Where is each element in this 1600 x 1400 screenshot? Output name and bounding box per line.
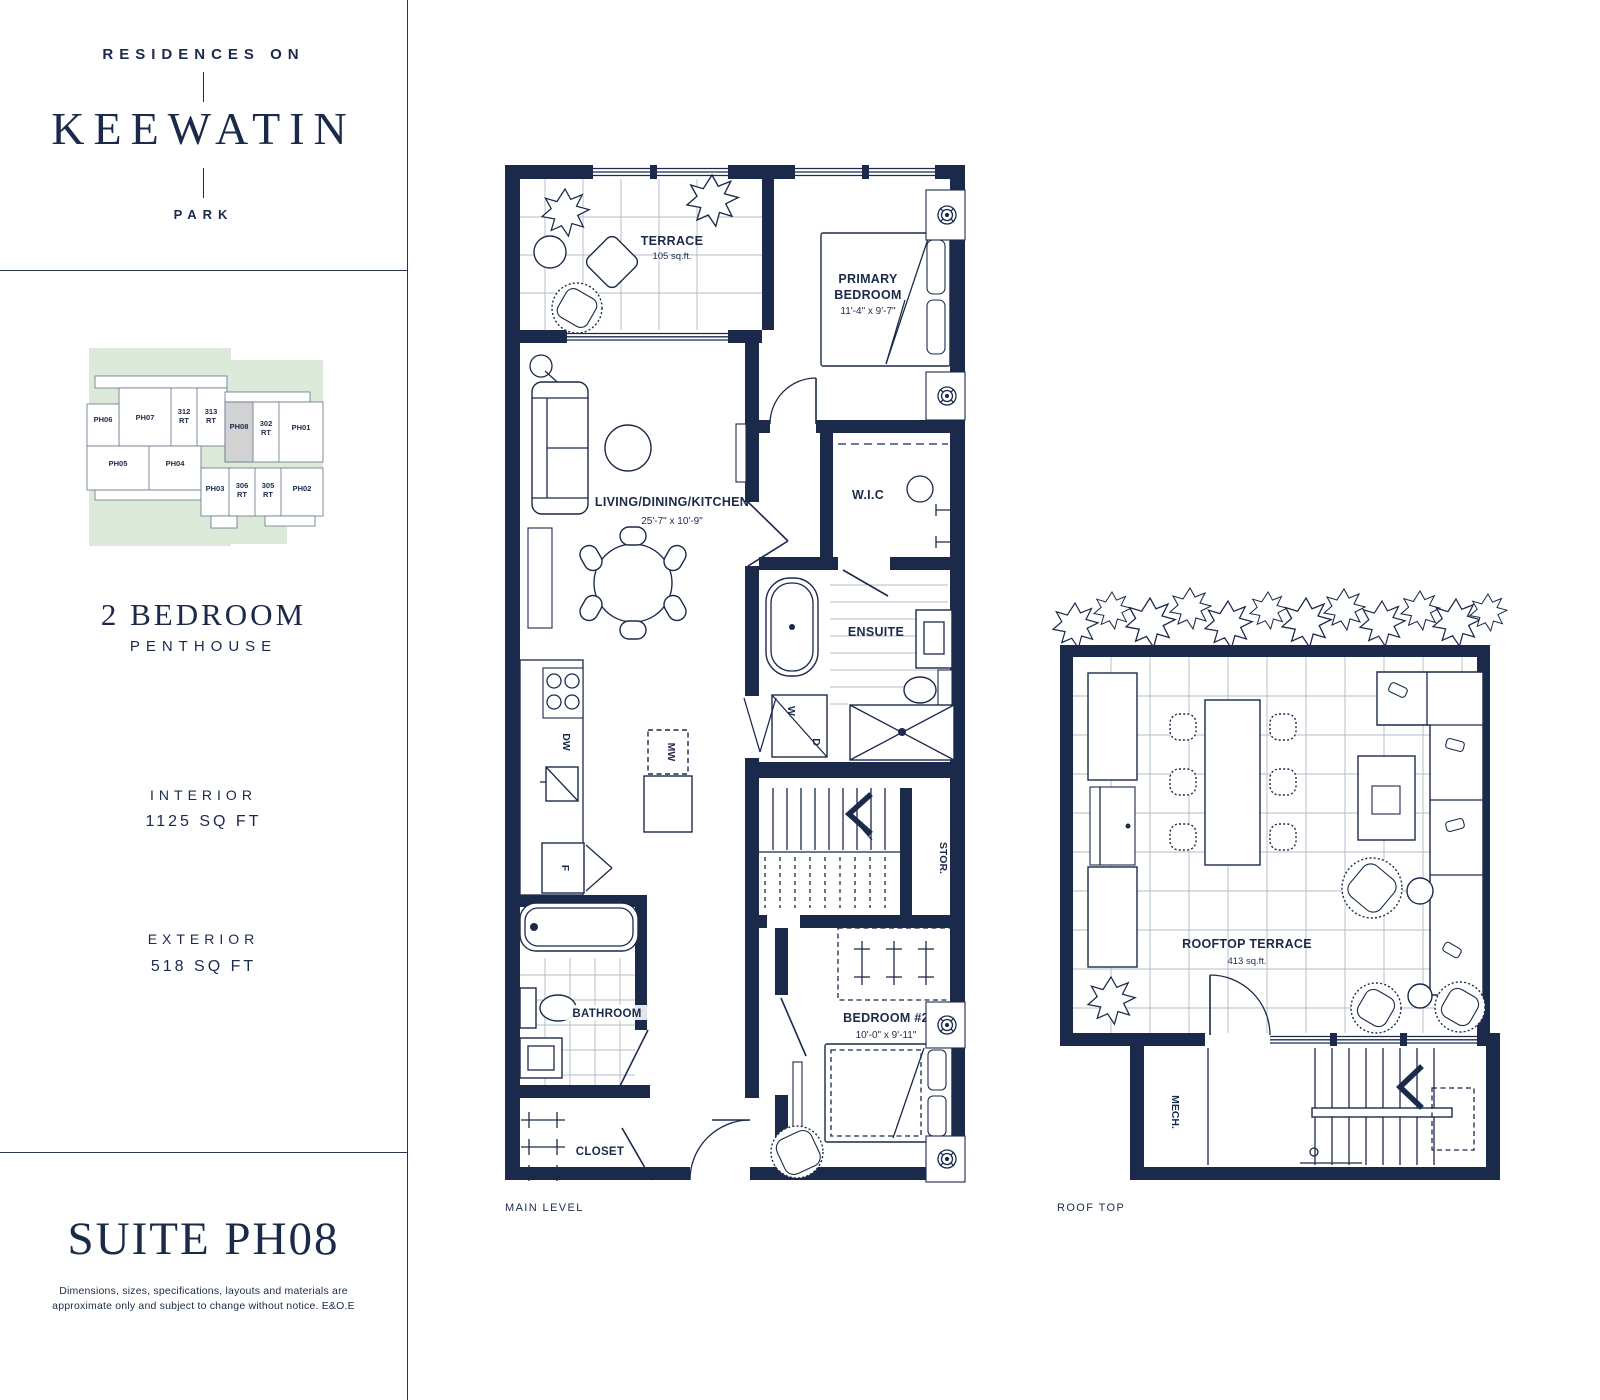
- logo-divider: [0, 270, 407, 271]
- primary-label-1: PRIMARY: [838, 272, 898, 286]
- console: [528, 528, 552, 628]
- terrace-area: 105 sq.ft.: [652, 251, 691, 262]
- ensuite-door: [843, 570, 888, 596]
- svg-text:PH04: PH04: [166, 459, 186, 468]
- brand-line-bottom: PARK: [0, 207, 407, 222]
- roof-top-caption: ROOF TOP: [1057, 1202, 1125, 1214]
- microwave-label: MW: [665, 743, 677, 762]
- floorplan-page: RESIDENCES ON KEEWATIN PARK: [0, 0, 1600, 1400]
- main-level-caption: MAIN LEVEL: [505, 1202, 584, 1214]
- ensuite-toilet: [904, 677, 936, 703]
- fridge-label: F: [559, 865, 571, 872]
- svg-text:RT: RT: [261, 428, 271, 437]
- disclaimer-line2: approximate only and subject to change w…: [0, 1299, 407, 1314]
- svg-text:RT: RT: [263, 490, 273, 499]
- svg-text:PH03: PH03: [206, 484, 225, 493]
- roof-dining: [1170, 700, 1296, 865]
- svg-text:PH06: PH06: [94, 415, 113, 424]
- svg-text:PH07: PH07: [136, 413, 155, 422]
- roof-door: [1210, 975, 1270, 1035]
- hedge: [1053, 588, 1507, 648]
- plant-icon: [687, 175, 738, 226]
- svg-text:PH05: PH05: [109, 459, 128, 468]
- svg-text:313: 313: [205, 407, 218, 416]
- primary-bedroom: PRIMARY BEDROOM 11'-4" x 9'-7": [770, 233, 950, 424]
- svg-text:312: 312: [178, 407, 191, 416]
- svg-text:PH01: PH01: [292, 423, 311, 432]
- stairs-arrow: [849, 796, 869, 832]
- floorplans: TERRACE 105 sq.ft. PRIMARY BEDROOM 11'-4…: [430, 0, 1600, 1400]
- living-dims: 25'-7" x 10'-9": [641, 516, 703, 527]
- stairs: STOR.: [759, 788, 949, 908]
- roof-planters: [1088, 673, 1137, 967]
- roof-chair: [1351, 983, 1401, 1033]
- keyplan-highlight-ph08: [225, 402, 253, 462]
- svg-text:PH08: PH08: [230, 422, 249, 431]
- suite-type-sub: PENTHOUSE: [0, 638, 407, 655]
- roof-side-table: [1407, 878, 1433, 904]
- terrace-table: [584, 234, 641, 291]
- svg-text:306: 306: [236, 481, 249, 490]
- bathroom-door: [620, 1030, 648, 1086]
- ensuite-label: ENSUITE: [848, 625, 904, 639]
- laundry-closet: W D: [744, 695, 827, 757]
- bedroom2-door: [781, 998, 806, 1056]
- mech-label: MECH.: [1169, 1095, 1181, 1129]
- entry-door-arc: [690, 1120, 750, 1180]
- svg-text:RT: RT: [237, 490, 247, 499]
- round-table: [605, 425, 651, 471]
- roof-bottom-seating: [1088, 977, 1485, 1033]
- exterior-value: 518 SQ FT: [0, 958, 407, 976]
- terrace: TERRACE 105 sq.ft.: [520, 175, 762, 333]
- plant-icon: [542, 189, 589, 236]
- bedroom2-dims: 10'-0" x 9'-11": [856, 1030, 917, 1041]
- suite-title: SUITE PH08: [0, 1212, 407, 1266]
- bathroom-label: BATHROOM: [572, 1008, 641, 1020]
- ensuite-vanity: [916, 610, 952, 668]
- disclaimer-line1: Dimensions, sizes, specifications, layou…: [0, 1284, 407, 1299]
- suite-type: 2 BEDROOM: [0, 597, 407, 633]
- interior-label: INTERIOR: [0, 787, 407, 803]
- brand-line-top: RESIDENCES ON: [0, 46, 407, 63]
- bedroom2-label: BEDROOM #2: [843, 1011, 929, 1025]
- svg-text:305: 305: [262, 481, 275, 490]
- exterior-label: EXTERIOR: [0, 931, 407, 947]
- stair-rail: [1312, 1108, 1452, 1117]
- dryer-label: D: [810, 738, 822, 746]
- hall-door: [748, 502, 788, 541]
- roof-dining-table: [1205, 700, 1260, 865]
- terrace-label: TERRACE: [641, 234, 704, 248]
- dishwasher-label: DW: [560, 733, 572, 751]
- roof-chair: [1435, 982, 1485, 1032]
- main-level-plan: TERRACE 105 sq.ft. PRIMARY BEDROOM 11'-4…: [505, 165, 965, 1214]
- svg-text:RT: RT: [206, 416, 216, 425]
- interior-value: 1125 SQ FT: [0, 813, 407, 831]
- washer-label: W: [785, 706, 797, 716]
- closet-label: CLOSET: [576, 1146, 624, 1158]
- living-label: LIVING/DINING/KITCHEN: [595, 495, 749, 509]
- disclaimer: Dimensions, sizes, specifications, layou…: [0, 1284, 407, 1314]
- bathroom-toilet: [520, 988, 536, 1028]
- wic: W.I.C: [838, 444, 960, 548]
- brand-tick-bottom: [203, 168, 204, 198]
- primary-dims: 11'-4" x 9'-7": [840, 306, 896, 317]
- suite-divider: [0, 1152, 407, 1153]
- bedroom2-closet: [838, 928, 954, 1000]
- svg-text:302: 302: [260, 419, 273, 428]
- island: [644, 776, 692, 832]
- primary-label-2: BEDROOM: [834, 288, 901, 302]
- plant-icon: [1088, 977, 1135, 1024]
- brand-name: KEEWATIN: [0, 102, 407, 155]
- roof-windows: [1270, 1037, 1477, 1044]
- roof-top-plan: ROOFTOP TERRACE 413 sq.ft. MECH. ROOF TO…: [1053, 588, 1507, 1214]
- mech-room: MECH.: [1169, 1048, 1474, 1165]
- roof-small-table: [1408, 984, 1432, 1008]
- terrace-side-table: [534, 236, 566, 268]
- brand-tick-top: [203, 72, 204, 102]
- sidebar-divider: [407, 0, 408, 1400]
- dining-table: [594, 544, 672, 622]
- svg-text:RT: RT: [179, 416, 189, 425]
- bathroom-vanity: [520, 1038, 562, 1078]
- rooftop-area: 413 sq.ft.: [1227, 956, 1266, 967]
- wic-label: W.I.C: [852, 488, 884, 502]
- keyplan: PH06 PH07 312 RT 313 RT PH08 302 RT PH01…: [75, 328, 331, 562]
- rooftop-label: ROOFTOP TERRACE: [1182, 937, 1312, 951]
- storage-label: STOR.: [937, 842, 949, 874]
- roof-lounge: [1342, 672, 1483, 995]
- tv: [736, 424, 746, 482]
- svg-text:PH02: PH02: [293, 484, 312, 493]
